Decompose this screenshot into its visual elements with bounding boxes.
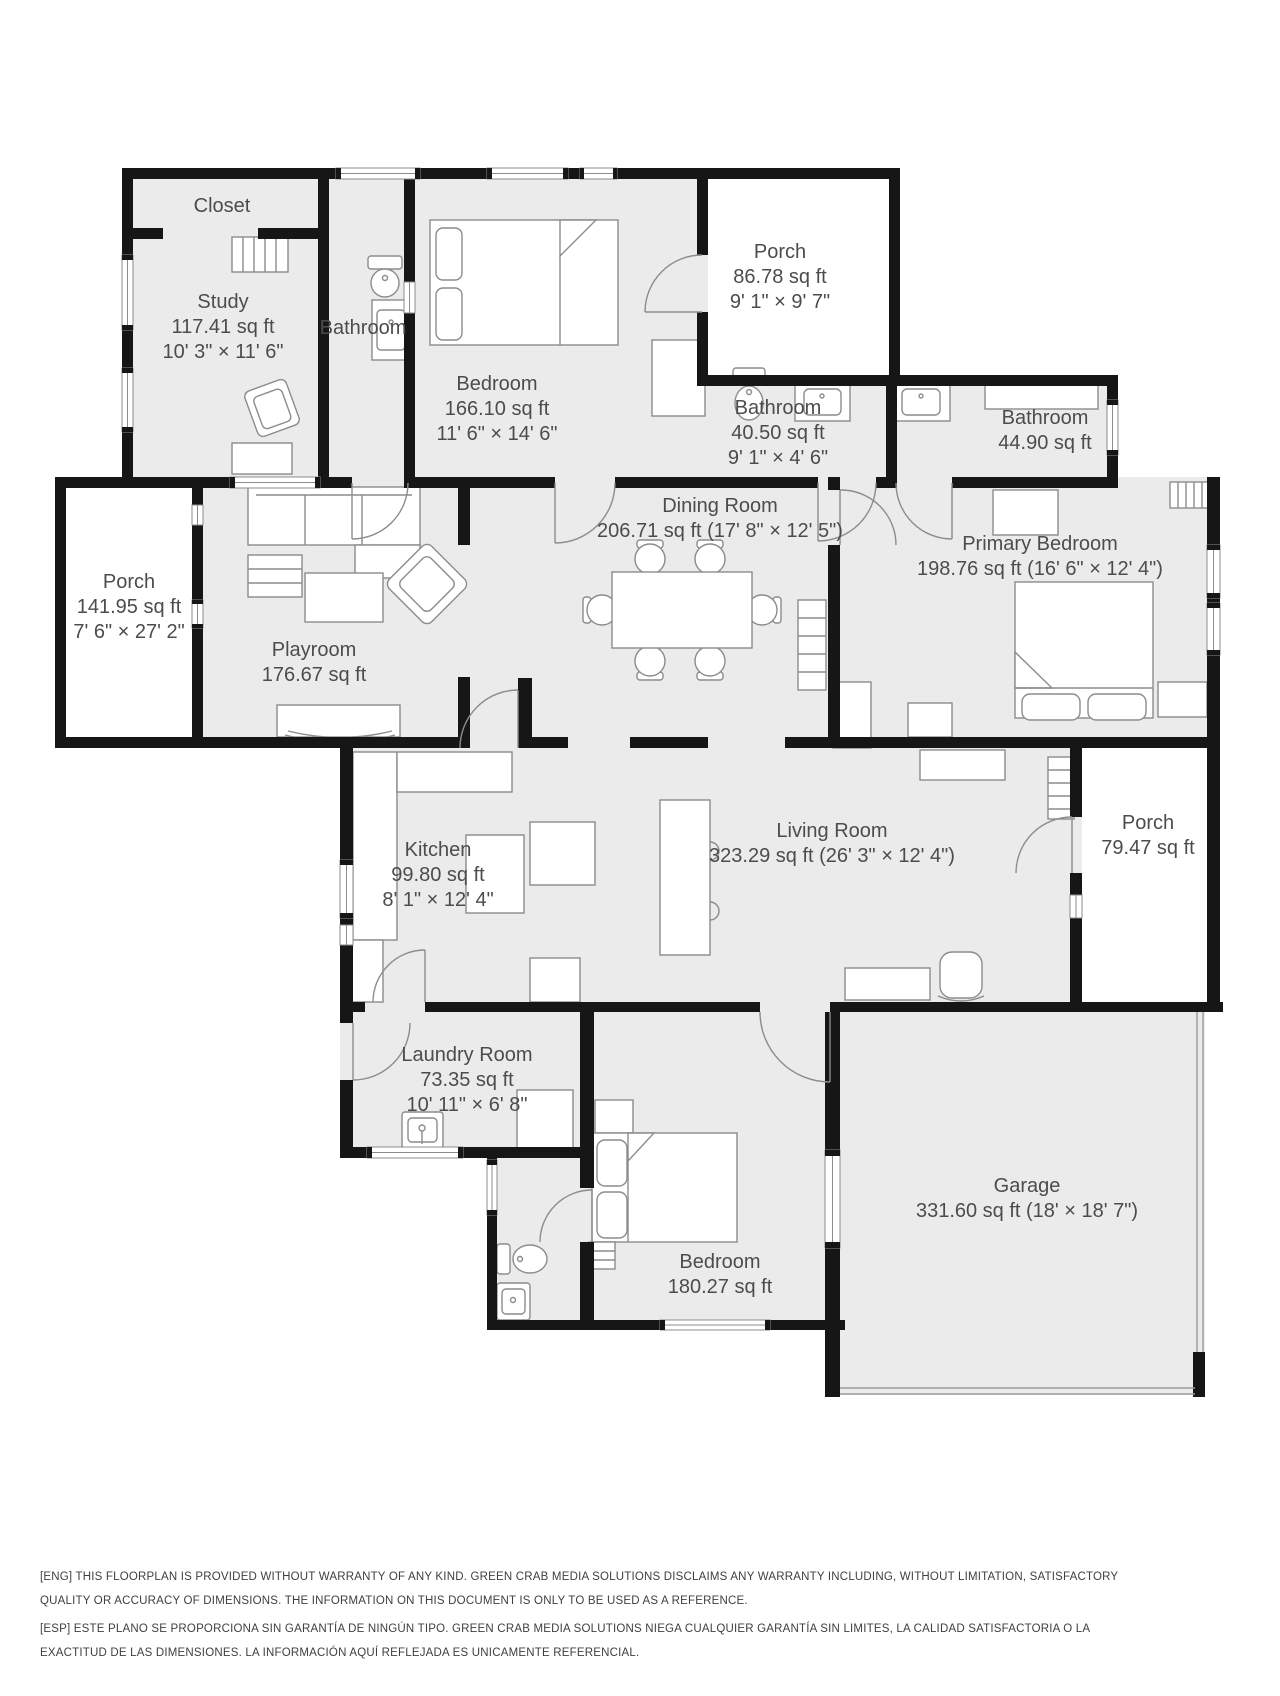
window-icon xyxy=(660,1320,770,1330)
study-desk-symbol xyxy=(232,443,292,474)
room-label-kitchen: Kitchen 99.80 sq ft 8' 1" × 12' 4" xyxy=(382,838,493,913)
room-label-bathroom-3: Bathroom 44.90 sq ft xyxy=(998,406,1091,456)
window-icon xyxy=(192,505,203,525)
room-area: 176.67 sq ft xyxy=(262,663,367,688)
room-name: Kitchen xyxy=(382,838,493,863)
window-icon xyxy=(487,168,568,179)
window-icon xyxy=(1107,400,1118,455)
bed-symbol xyxy=(1015,582,1153,720)
room-name: Porch xyxy=(73,570,184,595)
floorplan-page: Closet Study 117.41 sq ft 10' 3" × 11' 6… xyxy=(0,0,1280,1696)
room-dims: 10' 11" × 6' 8" xyxy=(401,1093,532,1118)
coffee-table-symbol xyxy=(305,573,383,622)
tv-cabinet-symbol xyxy=(920,750,1005,780)
stairs-symbol xyxy=(1170,482,1208,508)
tv-cabinet-symbol xyxy=(993,490,1058,535)
room-label-primary-bedroom: Primary Bedroom 198.76 sq ft (16' 6" × 1… xyxy=(917,532,1163,582)
room-label-porch-top: Porch 86.78 sq ft 9' 1" × 9' 7" xyxy=(730,240,830,315)
window-icon xyxy=(367,1147,463,1158)
window-icon xyxy=(122,368,133,432)
dresser-symbol xyxy=(908,703,952,737)
room-dims: 8' 1" × 12' 4" xyxy=(382,888,493,913)
room-name: Playroom xyxy=(262,638,367,663)
toilet-symbol xyxy=(368,256,402,297)
room-name: Bathroom xyxy=(320,316,407,341)
room-area: 166.10 sq ft xyxy=(437,397,558,422)
room-name: Bathroom xyxy=(728,396,828,421)
room-area: 180.27 sq ft xyxy=(668,1275,773,1300)
room-label-bedroom-2: Bedroom 180.27 sq ft xyxy=(668,1250,773,1300)
room-area: 79.47 sq ft xyxy=(1101,836,1194,861)
room-name: Garage xyxy=(916,1174,1138,1199)
room-name: Closet xyxy=(194,194,251,219)
desk-symbol xyxy=(845,968,930,1000)
room-label-dining-room: Dining Room 206.71 sq ft (17' 8" × 12' 5… xyxy=(597,494,843,544)
room-label-porch-right: Porch 79.47 sq ft xyxy=(1101,811,1194,861)
room-label-closet: Closet xyxy=(194,194,251,219)
cabinet-symbol xyxy=(530,958,580,1002)
room-name: Bedroom xyxy=(437,372,558,397)
room-area: 73.35 sq ft xyxy=(401,1068,532,1093)
window-icon xyxy=(487,1160,497,1215)
hall-closet-symbol xyxy=(798,600,826,690)
tv-console-symbol xyxy=(277,705,400,743)
window-icon xyxy=(825,1150,840,1248)
room-dims: 9' 1" × 4' 6" xyxy=(728,446,828,471)
nightstand-symbol xyxy=(595,1100,633,1133)
room-area: 99.80 sq ft xyxy=(382,863,493,888)
room-name: Porch xyxy=(730,240,830,265)
room-area: 40.50 sq ft xyxy=(728,421,828,446)
room-area: 206.71 sq ft (17' 8" × 12' 5") xyxy=(597,519,843,544)
dresser-symbol xyxy=(1158,682,1207,717)
room-label-living-room: Living Room 323.29 sq ft (26' 3" × 12' 4… xyxy=(709,819,955,869)
window-icon xyxy=(580,168,617,179)
room-name: Study xyxy=(163,290,284,315)
window-icon xyxy=(340,925,353,945)
room-area: 117.41 sq ft xyxy=(163,315,284,340)
room-label-study: Study 117.41 sq ft 10' 3" × 11' 6" xyxy=(163,290,284,365)
room-area: 323.29 sq ft (26' 3" × 12' 4") xyxy=(709,844,955,869)
toilet-symbol xyxy=(497,1244,547,1274)
room-label-garage: Garage 331.60 sq ft (18' × 18' 7") xyxy=(916,1174,1138,1224)
room-label-bedroom-1: Bedroom 166.10 sq ft 11' 6" × 14' 6" xyxy=(437,372,558,447)
closet-shelf-symbol xyxy=(232,237,288,272)
window-icon xyxy=(336,168,420,179)
window-icon xyxy=(192,600,203,628)
room-label-porch-left: Porch 141.95 sq ft 7' 6" × 27' 2" xyxy=(73,570,184,645)
room-dims: 11' 6" × 14' 6" xyxy=(437,422,558,447)
room-dims: 9' 1" × 9' 7" xyxy=(730,290,830,315)
room-dims: 7' 6" × 27' 2" xyxy=(73,620,184,645)
room-name: Porch xyxy=(1101,811,1194,836)
disclaimer-english: [ENG] THIS FLOORPLAN IS PROVIDED WITHOUT… xyxy=(40,1565,1155,1613)
room-area: 141.95 sq ft xyxy=(73,595,184,620)
room-label-bathroom-top: Bathroom xyxy=(320,316,407,341)
room-area: 44.90 sq ft xyxy=(998,431,1091,456)
room-area: 331.60 sq ft (18' × 18' 7") xyxy=(916,1199,1138,1224)
disclaimer-spanish: [ESP] ESTE PLANO SE PROPORCIONA SIN GARA… xyxy=(40,1617,1155,1665)
pocket-door-icon xyxy=(404,282,415,313)
window-icon xyxy=(1070,895,1082,918)
room-name: Bathroom xyxy=(998,406,1091,431)
room-area: 198.76 sq ft (16' 6" × 12' 4") xyxy=(917,557,1163,582)
bookshelf-symbol xyxy=(248,555,302,597)
room-label-playroom: Playroom 176.67 sq ft xyxy=(262,638,367,688)
sink-symbol xyxy=(497,1283,530,1320)
bed-symbol xyxy=(592,1133,737,1242)
room-label-laundry-room: Laundry Room 73.35 sq ft 10' 11" × 6' 8" xyxy=(401,1043,532,1118)
desk-chair-symbol xyxy=(938,952,984,1001)
window-icon xyxy=(1207,603,1220,655)
window-icon xyxy=(122,255,133,330)
sink-counter-symbol xyxy=(893,383,950,421)
floorplan-canvas xyxy=(0,0,1280,1696)
window-icon xyxy=(1207,545,1220,598)
room-dims: 10' 3" × 11' 6" xyxy=(163,340,284,365)
room-label-bathroom-2: Bathroom 40.50 sq ft 9' 1" × 4' 6" xyxy=(728,396,828,471)
room-name: Laundry Room xyxy=(401,1043,532,1068)
bed-symbol xyxy=(430,220,618,345)
window-icon xyxy=(230,477,320,488)
room-area: 86.78 sq ft xyxy=(730,265,830,290)
room-name: Living Room xyxy=(709,819,955,844)
room-name: Primary Bedroom xyxy=(917,532,1163,557)
room-name: Dining Room xyxy=(597,494,843,519)
room-name: Bedroom xyxy=(668,1250,773,1275)
window-icon xyxy=(340,860,353,918)
